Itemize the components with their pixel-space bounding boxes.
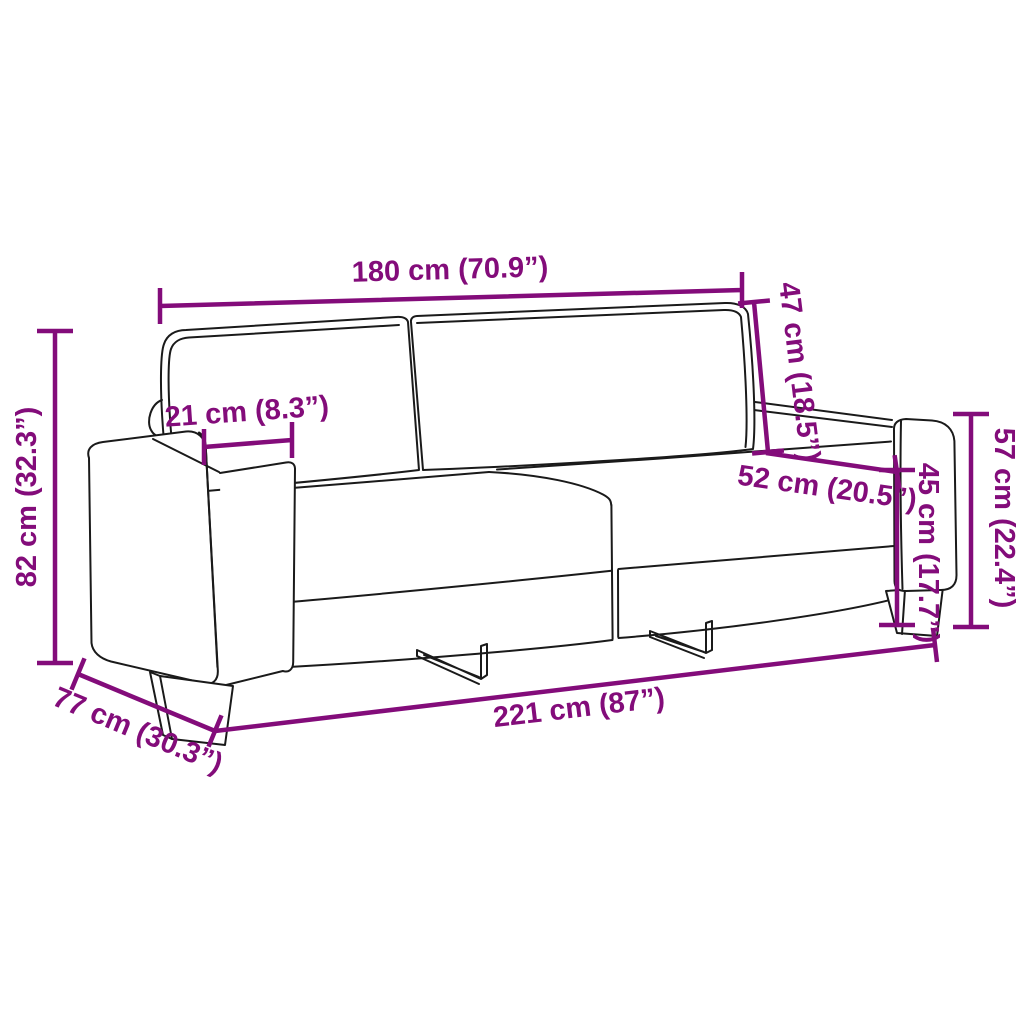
seat-base-bottom-right	[619, 599, 896, 639]
dimension-armrest-height: 57 cm (22.4”)	[953, 414, 1020, 627]
armrest-left-front-face	[88, 431, 218, 683]
dimension-overall-height: 82 cm (32.3”)	[11, 331, 73, 663]
seat-base-line-right	[619, 546, 895, 569]
dimension-label-armrest-height: 57 cm (22.4”)	[988, 428, 1020, 609]
dimension-label-overall-height: 82 cm (32.3”)	[11, 407, 43, 588]
armrest-left	[88, 431, 295, 686]
seat-cushion-middle-seam	[489, 472, 611, 505]
dimension-label-backrest-height: 47 cm (18.5”)	[772, 280, 826, 463]
metal-leg-center-left	[417, 644, 487, 684]
dimension-label-seat-height: 45 cm (17.7”)	[912, 463, 944, 644]
metal-leg-center-right	[650, 621, 712, 658]
diagram-canvas: 180 cm (70.9”) 47 cm (18.5”) 21 cm (8.3”…	[0, 0, 1024, 1024]
armrest-left-band	[220, 462, 295, 686]
dimension-line	[953, 414, 989, 627]
dimension-label-back-width: 180 cm (70.9”)	[351, 251, 548, 288]
dimension-seat-depth: 52 cm (20.5”)	[736, 453, 919, 516]
seat-base-bottom-left	[289, 640, 612, 667]
seat-base-line-left	[290, 571, 612, 602]
sofa-dimension-diagram: 180 cm (70.9”) 47 cm (18.5”) 21 cm (8.3”…	[0, 0, 1024, 1024]
seat-front-seam-left	[611, 505, 612, 639]
armrest-right-rail	[754, 402, 892, 427]
back-cushion-right	[411, 303, 754, 470]
sofa-illustration	[88, 303, 956, 745]
